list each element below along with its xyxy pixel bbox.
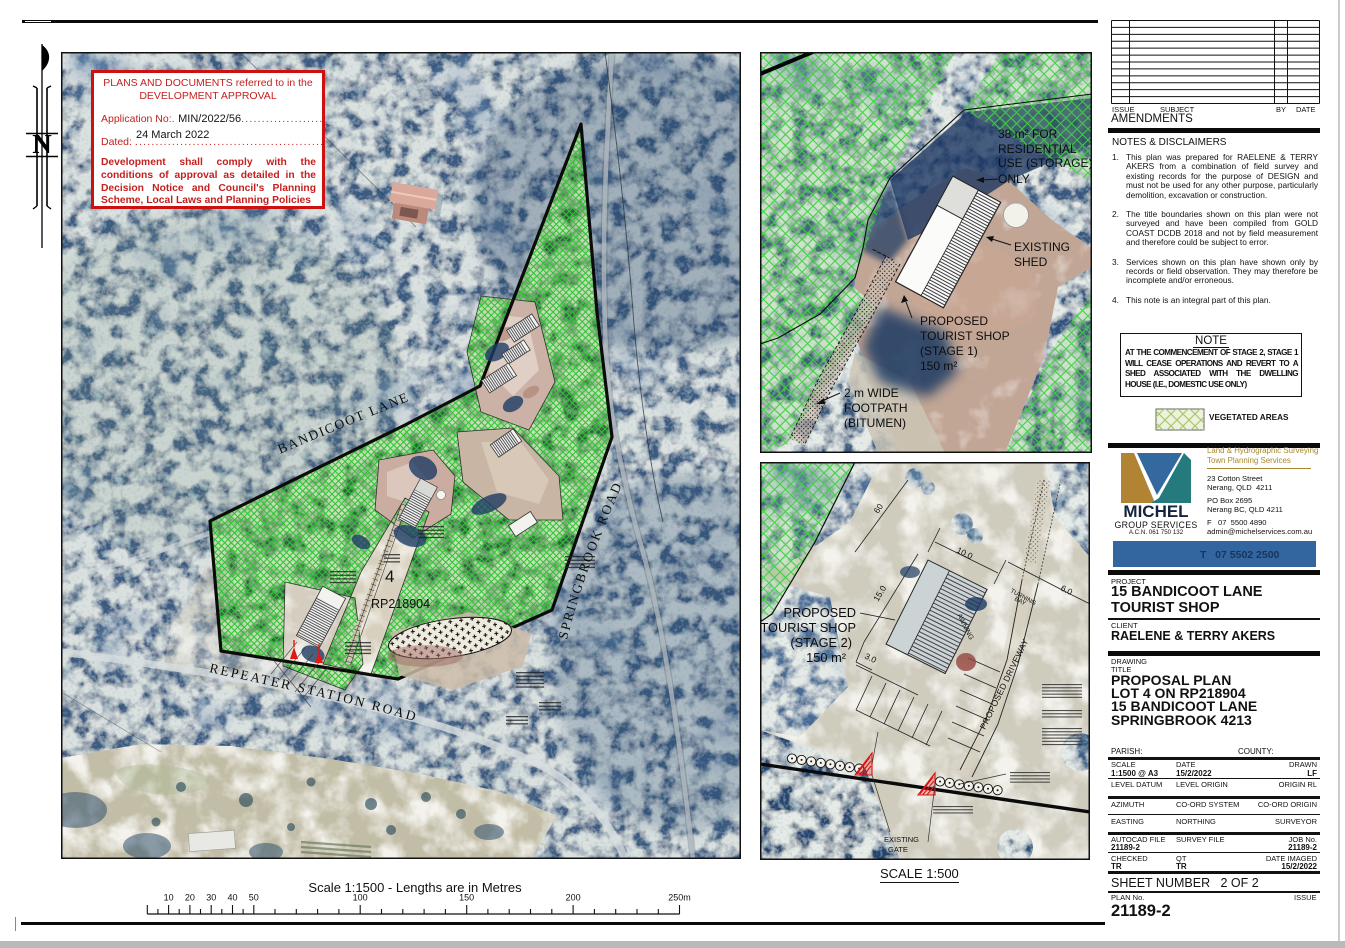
svg-text:EXISTING: EXISTING: [1014, 240, 1070, 254]
svg-text:(BITUMEN): (BITUMEN): [844, 416, 906, 430]
svg-text:100: 100: [353, 893, 368, 903]
svg-text:Scale 1:1500 - Lengths are in: Scale 1:1500 - Lengths are in Metres: [308, 880, 522, 895]
svg-text:30: 30: [206, 893, 216, 903]
svg-text:2 m WIDE: 2 m WIDE: [844, 386, 899, 400]
svg-text:FOOTPATH: FOOTPATH: [844, 401, 908, 415]
svg-text:RESIDENTIAL: RESIDENTIAL: [998, 142, 1077, 156]
svg-text:USE (STORAGE): USE (STORAGE): [998, 156, 1092, 170]
svg-text:ONLY: ONLY: [998, 172, 1030, 186]
svg-text:TOURIST SHOP: TOURIST SHOP: [920, 329, 1010, 343]
svg-text:4: 4: [385, 567, 394, 586]
svg-text:N: N: [32, 129, 52, 159]
svg-text:SHED: SHED: [1014, 255, 1048, 269]
svg-text:150 m²: 150 m²: [920, 359, 957, 373]
svg-text:40: 40: [227, 893, 237, 903]
svg-text:TOURIST SHOP: TOURIST SHOP: [760, 620, 856, 635]
svg-text:50: 50: [249, 893, 259, 903]
svg-text:200: 200: [566, 893, 581, 903]
svg-text:GATE: GATE: [888, 845, 908, 854]
svg-text:PROPOSED: PROPOSED: [920, 314, 988, 328]
svg-text:250m: 250m: [668, 893, 691, 903]
svg-text:(STAGE 1): (STAGE 1): [920, 344, 978, 358]
svg-text:PROPOSED: PROPOSED: [783, 605, 856, 620]
svg-text:RP218904: RP218904: [371, 597, 430, 611]
svg-text:EXISTING: EXISTING: [884, 835, 919, 844]
svg-text:10: 10: [164, 893, 174, 903]
svg-text:150: 150: [459, 893, 474, 903]
svg-text:150 m²: 150 m²: [806, 650, 847, 665]
svg-text:(STAGE 2): (STAGE 2): [790, 635, 852, 650]
svg-text:38 m² FOR: 38 m² FOR: [998, 127, 1058, 141]
svg-text:20: 20: [185, 893, 195, 903]
